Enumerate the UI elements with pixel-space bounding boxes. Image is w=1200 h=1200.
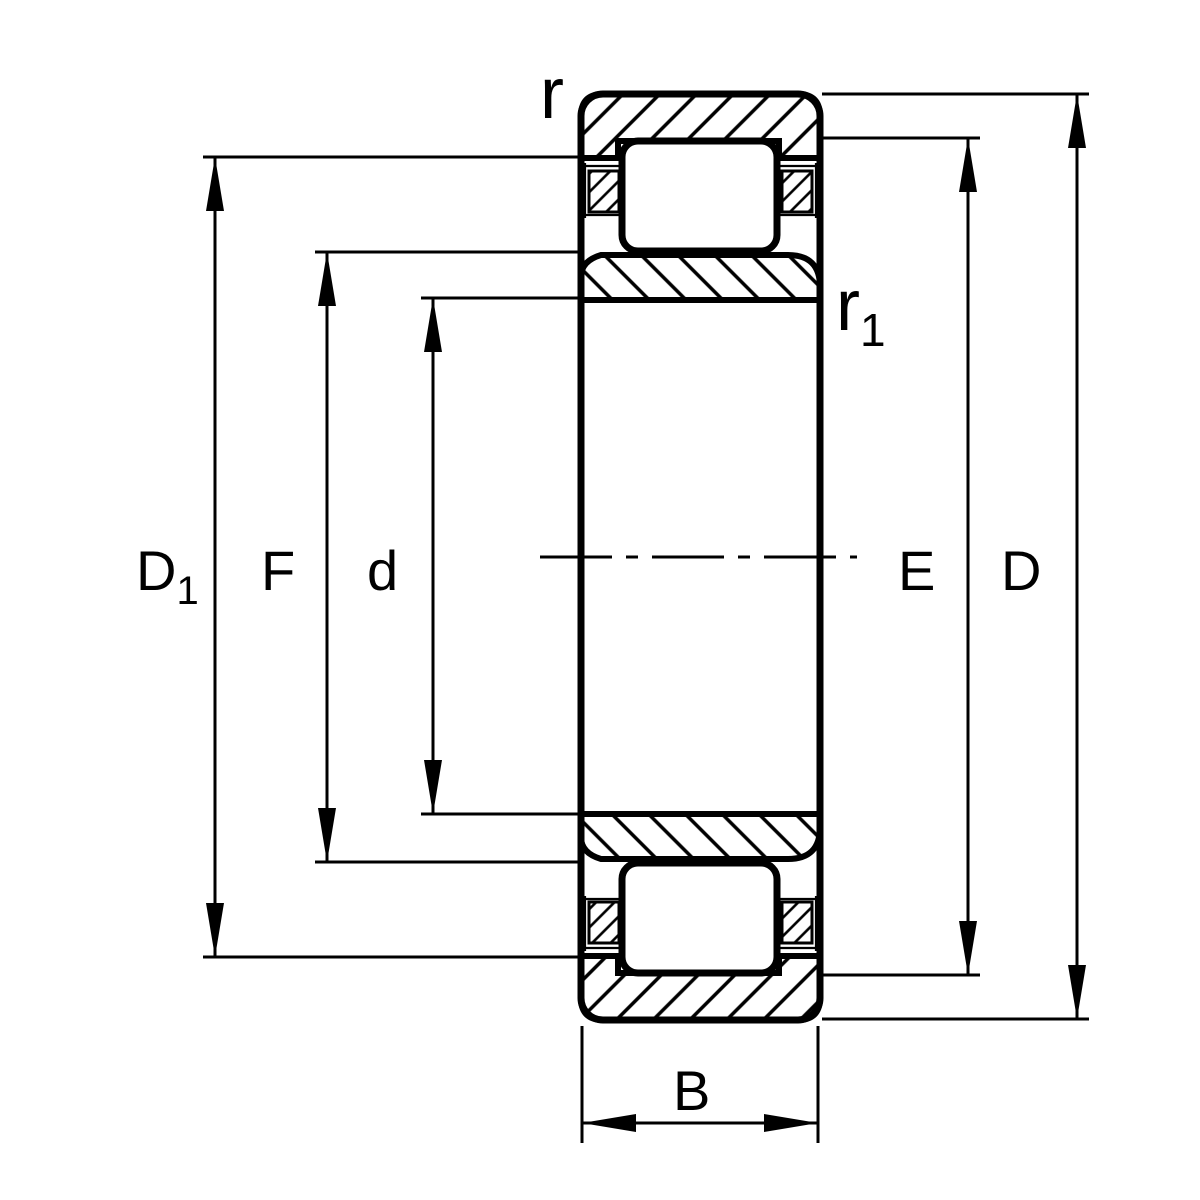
- dim-label-D1: D1: [136, 539, 199, 613]
- dim-label-F: F: [261, 539, 295, 602]
- inner-ring-top-section: [581, 255, 820, 300]
- bearing-section: [540, 94, 857, 1020]
- roller-bottom: [622, 863, 777, 973]
- cage-top-right: [782, 171, 812, 212]
- dim-label-d: d: [367, 539, 398, 602]
- chamfer-label-r1: r1: [836, 266, 886, 356]
- dim-label-D: D: [1001, 539, 1041, 602]
- dim-label-E: E: [898, 539, 935, 602]
- cage-bottom-left: [589, 902, 619, 943]
- roller-top: [622, 141, 777, 251]
- dimension-E: E: [822, 138, 980, 975]
- inner-ring-bottom-section: [581, 814, 820, 859]
- bearing-drawing-canvas: D1 F d E D: [0, 0, 1200, 1200]
- dimension-D1: D1: [136, 157, 581, 957]
- cage-bottom-right: [782, 902, 812, 943]
- dim-label-B: B: [673, 1059, 710, 1122]
- cage-top-left: [589, 171, 619, 212]
- dimension-D: D: [822, 94, 1089, 1019]
- dimension-B: B: [582, 1026, 818, 1143]
- outer-ring-bottom-section: [581, 956, 820, 1020]
- dimension-F: F: [261, 252, 581, 862]
- outer-ring-top-section: [581, 94, 820, 158]
- chamfer-label-r: r: [540, 54, 564, 134]
- bearing-section-diagram: D1 F d E D: [0, 0, 1200, 1200]
